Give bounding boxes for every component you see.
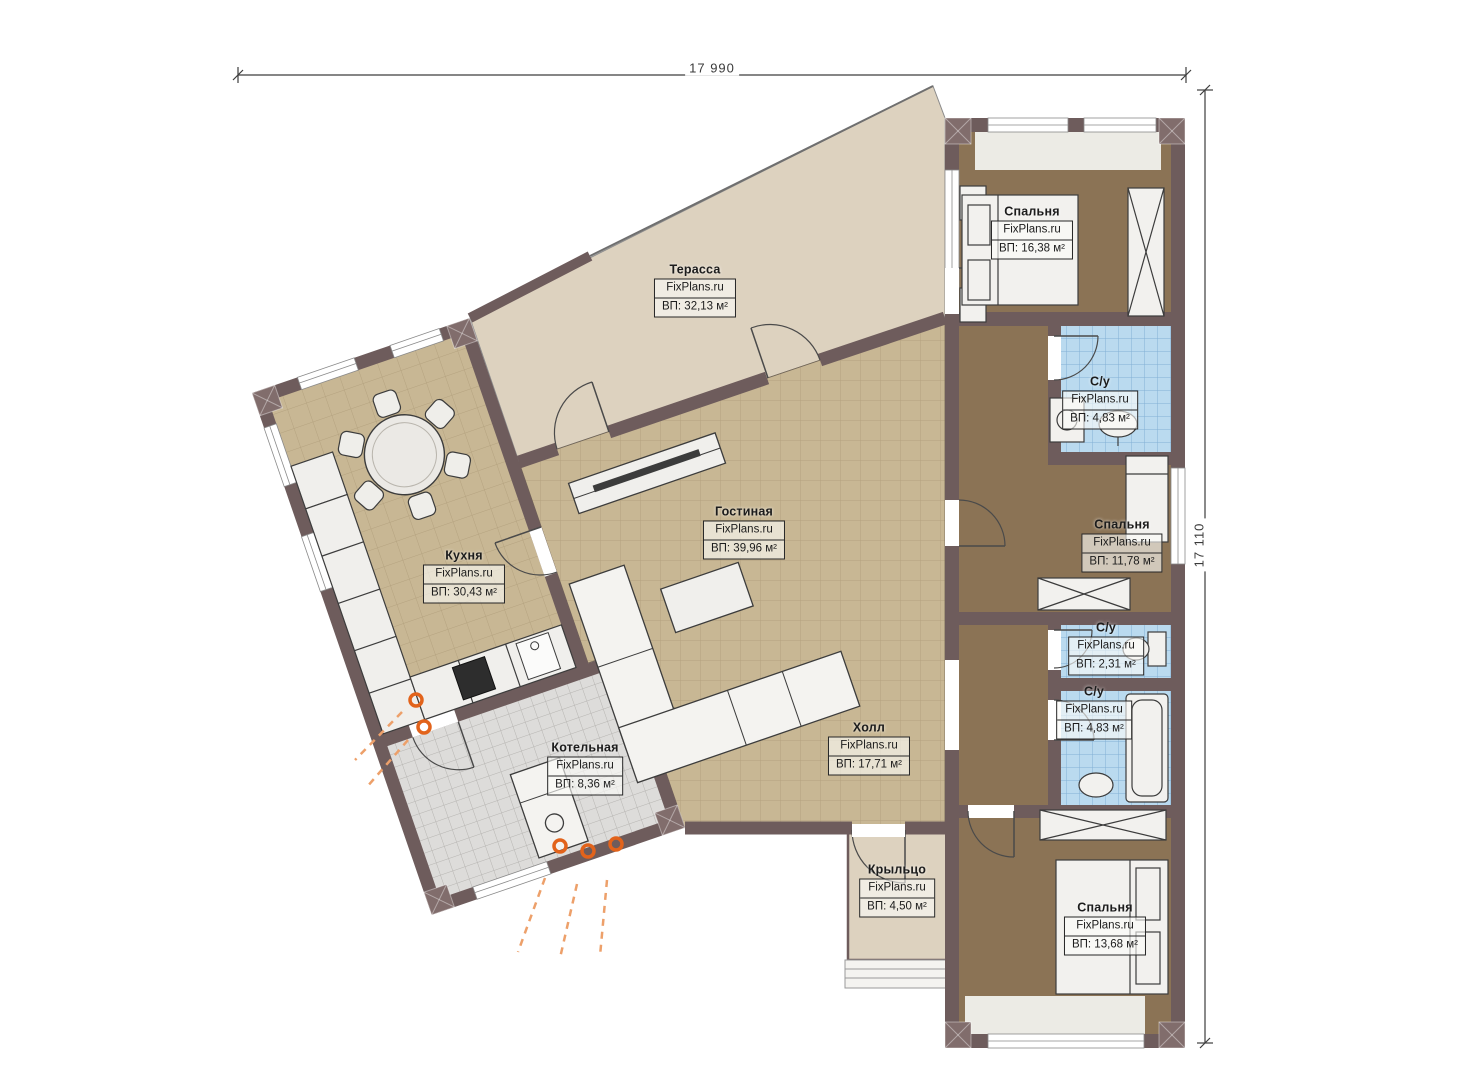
sink <box>1079 773 1113 797</box>
room-area: ВП: 17,71 м² <box>829 756 909 775</box>
room-name: Спальня <box>1064 901 1146 915</box>
room-name: Терасса <box>654 263 736 277</box>
watermark: FixPlans.ru <box>704 522 784 540</box>
room-name: С/у <box>1062 375 1138 389</box>
room-label-hall: Холл FixPlans.ru ВП: 17,71 м² <box>828 721 910 776</box>
room-name: Гостиная <box>703 505 785 519</box>
room-label-terrace: Терасса FixPlans.ru ВП: 32,13 м² <box>654 263 736 318</box>
room-name: Котельная <box>547 741 623 755</box>
room-area: ВП: 39,96 м² <box>704 540 784 559</box>
watermark: FixPlans.ru <box>1057 702 1131 720</box>
porch-steps <box>845 960 951 988</box>
room-area: ВП: 4,83 м² <box>1063 410 1137 429</box>
room-name: Холл <box>828 721 910 735</box>
room-area: ВП: 8,36 м² <box>548 776 622 795</box>
watermark: FixPlans.ru <box>1082 535 1161 553</box>
room-label-bath-3: С/у FixPlans.ru ВП: 4,83 м² <box>1056 685 1132 740</box>
watermark: FixPlans.ru <box>655 280 735 298</box>
room-label-porch: Крыльцо FixPlans.ru ВП: 4,50 м² <box>859 863 935 918</box>
watermark: FixPlans.ru <box>829 738 909 756</box>
room-name: С/у <box>1056 685 1132 699</box>
watermark: FixPlans.ru <box>1065 918 1145 936</box>
dimension-top: 17 990 <box>685 61 739 76</box>
room-label-bath-1: С/у FixPlans.ru ВП: 4,83 м² <box>1062 375 1138 430</box>
room-name: Кухня <box>423 549 505 563</box>
room-name: С/у <box>1068 621 1144 635</box>
room-area: ВП: 4,50 м² <box>860 898 934 917</box>
room-label-boiler-room: Котельная FixPlans.ru ВП: 8,36 м² <box>547 741 623 796</box>
room-area: ВП: 30,43 м² <box>424 584 504 603</box>
room-label-living-room: Гостиная FixPlans.ru ВП: 39,96 м² <box>703 505 785 560</box>
watermark: FixPlans.ru <box>1063 392 1137 410</box>
room-label-bedroom-1: Спальня FixPlans.ru ВП: 16,38 м² <box>991 205 1073 260</box>
room-label-bedroom-2: Спальня FixPlans.ru ВП: 11,78 м² <box>1081 518 1162 573</box>
room-name: Спальня <box>1081 518 1162 532</box>
floor-plan-page: Терасса FixPlans.ru ВП: 32,13 м² Спальня… <box>0 0 1473 1080</box>
room-label-kitchen: Кухня FixPlans.ru ВП: 30,43 м² <box>423 549 505 604</box>
room-name: Спальня <box>991 205 1073 219</box>
room-name: Крыльцо <box>859 863 935 877</box>
watermark: FixPlans.ru <box>424 566 504 584</box>
toilet <box>1148 632 1166 666</box>
room-area: ВП: 32,13 м² <box>655 298 735 317</box>
watermark: FixPlans.ru <box>548 758 622 776</box>
room-label-bedroom-3: Спальня FixPlans.ru ВП: 13,68 м² <box>1064 901 1146 956</box>
room-area: ВП: 2,31 м² <box>1069 656 1143 675</box>
bedroom3-window-band <box>965 996 1145 1034</box>
room-label-bath-2: С/у FixPlans.ru ВП: 2,31 м² <box>1068 621 1144 676</box>
room-area: ВП: 11,78 м² <box>1082 553 1161 572</box>
watermark: FixPlans.ru <box>992 222 1072 240</box>
watermark: FixPlans.ru <box>1069 638 1143 656</box>
dimension-right: 17 110 <box>1192 519 1207 572</box>
room-area: ВП: 4,83 м² <box>1057 720 1131 739</box>
bedroom1-window-band <box>975 132 1161 170</box>
room-area: ВП: 16,38 м² <box>992 240 1072 259</box>
watermark: FixPlans.ru <box>860 880 934 898</box>
room-area: ВП: 13,68 м² <box>1065 936 1145 955</box>
